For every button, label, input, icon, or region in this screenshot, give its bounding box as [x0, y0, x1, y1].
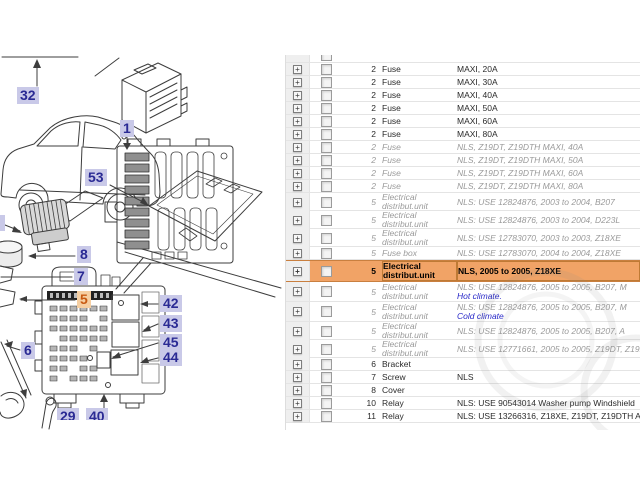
- table-row[interactable]: + 11 Relay NLS: USE 13266316, Z18XE, Z19…: [286, 410, 640, 423]
- part-description: MAXI, 20A: [457, 65, 640, 74]
- description-line1: NLS: USE 12824876, 2003 to 2004, D223L: [457, 216, 640, 225]
- position-number: 5: [342, 344, 382, 354]
- description-line1: MAXI, 60A: [457, 117, 640, 126]
- diagram-callout[interactable]: 5: [77, 291, 91, 308]
- part-description: NLS: [457, 373, 640, 382]
- part-description: MAXI, 40A: [457, 91, 640, 100]
- part-description: NLS, 2005 to 2005, Z18XE: [457, 261, 640, 281]
- table-row[interactable]: + 2 Fuse NLS, Z19DT, Z19DTH MAXI, 40A: [286, 141, 640, 154]
- part-description: NLS: USE 12771661, 2005 to 2005, Z19DT, …: [457, 345, 640, 354]
- expand-plus-icon[interactable]: +: [293, 117, 302, 126]
- row-checkbox[interactable]: [321, 359, 332, 370]
- part-description: MAXI, 60A: [457, 117, 640, 126]
- part-name: Electrical distribut.unit: [382, 340, 457, 358]
- table-row[interactable]: + 5 Electrical distribut.unit NLS: USE 1…: [286, 211, 640, 229]
- row-checkbox[interactable]: [321, 286, 332, 297]
- expand-plus-icon[interactable]: +: [293, 78, 302, 87]
- description-line1: NLS: USE 90543014 Washer pump Windshield: [457, 399, 640, 408]
- part-name: Fuse: [382, 117, 457, 126]
- checkbox-cell: [310, 261, 342, 281]
- part-name: Screw: [382, 373, 457, 382]
- position-number: 2: [342, 116, 382, 126]
- description-line1: MAXI, 50A: [457, 104, 640, 113]
- expand-cell: +: [286, 115, 310, 127]
- expand-plus-icon[interactable]: +: [293, 373, 302, 382]
- expand-plus-icon[interactable]: +: [293, 130, 302, 139]
- position-number: 5: [342, 233, 382, 243]
- diagram-callout[interactable]: 6: [21, 342, 35, 359]
- checkbox-cell: [310, 141, 342, 153]
- table-row[interactable]: + 5 Electrical distribut.unit NLS: USE 1…: [286, 322, 640, 340]
- expand-cell: +: [286, 261, 310, 281]
- description-line2: Hot climate.: [457, 292, 640, 301]
- part-name: Electrical distribut.unit: [382, 283, 457, 301]
- epc-window: 32 1 53 8 7 5 6 42 43 45 44 29 40 + 2 Fu…: [0, 0, 640, 480]
- row-checkbox[interactable]: [321, 266, 332, 277]
- diagram-callout[interactable]: 8: [77, 246, 91, 263]
- expand-cell: +: [286, 397, 310, 409]
- checkbox-cell: [310, 384, 342, 396]
- diagram-pane: 32 1 53 8 7 5 6 42 43 45 44 29 40: [0, 0, 285, 480]
- part-description: NLS: USE 12783070, 2004 to 2004, Z18XE: [457, 249, 640, 258]
- table-row[interactable]: + 2 Fuse NLS, Z19DT, Z19DTH MAXI, 50A: [286, 154, 640, 167]
- part-description: NLS: USE 12824876, 2003 to 2004, B207: [457, 198, 640, 207]
- expand-cell: +: [286, 154, 310, 166]
- clipped-callout-sliver: [0, 215, 5, 231]
- part-name: Electrical distribut.unit: [382, 229, 457, 247]
- expand-cell: +: [286, 371, 310, 383]
- row-checkbox[interactable]: [321, 372, 332, 383]
- part-name: Fuse: [382, 143, 457, 152]
- expand-plus-icon[interactable]: +: [293, 104, 302, 113]
- expand-plus-icon[interactable]: +: [293, 345, 302, 354]
- part-name: Electrical distribut.unit: [382, 211, 457, 229]
- expand-plus-icon[interactable]: +: [293, 143, 302, 152]
- description-line1: MAXI, 40A: [457, 91, 640, 100]
- row-checkbox[interactable]: [321, 90, 332, 101]
- checkbox-cell: [310, 358, 342, 370]
- position-number: 6: [342, 359, 382, 369]
- table-row[interactable]: + 6 Bracket: [286, 358, 640, 371]
- part-name: Fuse: [382, 169, 457, 178]
- part-description: MAXI, 30A: [457, 78, 640, 87]
- expand-plus-icon[interactable]: +: [293, 65, 302, 74]
- description-line1: NLS, Z19DT, Z19DTH MAXI, 40A: [457, 143, 640, 152]
- expand-cell: +: [286, 247, 310, 259]
- part-description: NLS: USE 12824876, 2003 to 2004, D223L: [457, 216, 640, 225]
- table-row[interactable]: + 2 Fuse MAXI, 20A: [286, 63, 640, 76]
- description-line1: MAXI, 20A: [457, 65, 640, 74]
- expand-cell: +: [286, 322, 310, 340]
- clipped-top-row: [286, 55, 640, 63]
- checkbox-cell: [310, 115, 342, 127]
- checkbox-cell: [310, 211, 342, 229]
- description-line1: NLS: USE 12771661, 2005 to 2005, Z19DT, …: [457, 345, 640, 354]
- table-row[interactable]: + 5 Electrical distribut.unit NLS: USE 1…: [286, 302, 640, 322]
- row-checkbox[interactable]: [321, 233, 332, 244]
- part-description: NLS: USE 12783070, 2003 to 2003, Z18XE: [457, 234, 640, 243]
- part-name: Electrical distribut.unit: [382, 303, 457, 321]
- car-leader-lines: [117, 242, 281, 297]
- checkbox-cell: [310, 154, 342, 166]
- expand-plus-icon[interactable]: +: [293, 169, 302, 178]
- table-row[interactable]: + 2 Fuse MAXI, 30A: [286, 76, 640, 89]
- description-line1: NLS: USE 12824876, 2005 to 2005, B207, A: [457, 327, 640, 336]
- expand-plus-icon[interactable]: +: [293, 399, 302, 408]
- row-checkbox[interactable]: [321, 181, 332, 192]
- checkbox-cell: [310, 63, 342, 75]
- checkbox-cell: [310, 167, 342, 179]
- row-checkbox[interactable]: [321, 344, 332, 355]
- diagram-callout[interactable]: 44: [160, 349, 182, 366]
- position-number: 10: [342, 398, 382, 408]
- part-name: Fuse: [382, 65, 457, 74]
- part-name: Fuse: [382, 91, 457, 100]
- part-name: Bracket: [382, 360, 457, 369]
- table-row[interactable]: + 5 Electrical distribut.unit NLS, 2005 …: [286, 260, 640, 282]
- part-name: Fuse: [382, 104, 457, 113]
- part-description: NLS: USE 12824876, 2005 to 2005, B207, M…: [457, 303, 640, 321]
- cap-part: [0, 241, 22, 267]
- row-checkbox[interactable]: [321, 215, 332, 226]
- part-description: MAXI, 50A: [457, 104, 640, 113]
- description-line1: NLS, 2005 to 2005, Z18XE: [458, 267, 639, 276]
- checkbox-cell: [310, 410, 342, 422]
- position-number: 2: [342, 90, 382, 100]
- position-number: 5: [342, 197, 382, 207]
- part-description: NLS, Z19DT, Z19DTH MAXI, 40A: [457, 143, 640, 152]
- description-line1: MAXI, 80A: [457, 130, 640, 139]
- expand-plus-icon[interactable]: +: [293, 216, 302, 225]
- description-line1: NLS: USE 13266316, Z18XE, Z19DT, Z19DTH …: [457, 412, 640, 421]
- part-name: Relay: [382, 412, 457, 421]
- table-row[interactable]: + 10 Relay NLS: USE 90543014 Washer pump…: [286, 397, 640, 410]
- table-row[interactable]: + 8 Cover: [286, 384, 640, 397]
- row-checkbox[interactable]: [321, 129, 332, 140]
- table-row[interactable]: + 5 Electrical distribut.unit NLS: USE 1…: [286, 229, 640, 247]
- diagram-callout[interactable]: 43: [160, 315, 182, 332]
- expand-plus-icon[interactable]: +: [293, 182, 302, 191]
- checkbox-cell: [310, 371, 342, 383]
- position-number: 5: [342, 326, 382, 336]
- row-checkbox[interactable]: [321, 385, 332, 396]
- main-fuse-box: [35, 267, 165, 408]
- reference-line-2: [95, 58, 119, 76]
- part-name: Fuse: [382, 130, 457, 139]
- expand-plus-icon[interactable]: +: [293, 249, 302, 258]
- clipped-part-5: [0, 289, 15, 307]
- table-row[interactable]: + 2 Fuse NLS, Z19DT, Z19DTH MAXI, 80A: [286, 180, 640, 193]
- table-row[interactable]: + 5 Electrical distribut.unit NLS: USE 1…: [286, 193, 640, 211]
- part-description: NLS: USE 13266316, Z18XE, Z19DT, Z19DTH …: [457, 412, 640, 421]
- description-line1: NLS: [457, 373, 640, 382]
- description-line2: Cold climate: [457, 312, 640, 321]
- description-line1: NLS: USE 12783070, 2003 to 2003, Z18XE: [457, 234, 640, 243]
- row-checkbox[interactable]: [321, 64, 332, 75]
- checkbox-cell: [310, 340, 342, 358]
- part-name: Cover: [382, 386, 457, 395]
- expand-plus-icon[interactable]: +: [293, 412, 302, 421]
- checkbox-cell: [310, 302, 342, 321]
- checkbox-cell: [310, 76, 342, 88]
- expand-plus-icon[interactable]: +: [293, 156, 302, 165]
- position-number: 2: [342, 129, 382, 139]
- row-checkbox[interactable]: [321, 116, 332, 127]
- expand-strip: [286, 55, 310, 63]
- description-line1: NLS, Z19DT, Z19DTH MAXI, 50A: [457, 156, 640, 165]
- checkbox-cell: [310, 397, 342, 409]
- diagram-callout[interactable]: 53: [85, 169, 107, 186]
- part-name: Fuse: [382, 78, 457, 87]
- expand-cell: +: [286, 384, 310, 396]
- expand-cell: +: [286, 410, 310, 422]
- part-description: NLS, Z19DT, Z19DTH MAXI, 60A: [457, 169, 640, 178]
- expand-plus-icon[interactable]: +: [293, 360, 302, 369]
- expand-cell: +: [286, 76, 310, 88]
- position-number: 5: [342, 307, 382, 317]
- row-checkbox[interactable]: [321, 142, 332, 153]
- position-number: 5: [342, 287, 382, 297]
- description-line1: NLS: USE 12783070, 2004 to 2004, Z18XE: [457, 249, 640, 258]
- position-number: 2: [342, 77, 382, 87]
- diagram-callout[interactable]: 29: [57, 408, 79, 420]
- row-checkbox[interactable]: [321, 103, 332, 114]
- row-checkbox[interactable]: [321, 248, 332, 259]
- expand-cell: +: [286, 340, 310, 358]
- expand-plus-icon[interactable]: +: [293, 386, 302, 395]
- expand-plus-icon[interactable]: +: [293, 91, 302, 100]
- expand-plus-icon[interactable]: +: [293, 234, 302, 243]
- diagram-callout[interactable]: 42: [160, 295, 182, 312]
- expand-cell: +: [286, 63, 310, 75]
- expand-plus-icon[interactable]: +: [293, 287, 302, 296]
- expand-plus-icon[interactable]: +: [293, 307, 302, 316]
- position-number: 2: [342, 168, 382, 178]
- part-name: Fuse box: [382, 249, 457, 258]
- position-number: 2: [342, 64, 382, 74]
- table-row[interactable]: + 5 Electrical distribut.unit NLS: USE 1…: [286, 282, 640, 302]
- expand-cell: +: [286, 102, 310, 114]
- expand-plus-icon[interactable]: +: [293, 327, 302, 336]
- part-description: NLS: USE 90543014 Washer pump Windshield: [457, 399, 640, 408]
- position-number: 8: [342, 385, 382, 395]
- row-checkbox[interactable]: [321, 168, 332, 179]
- position-number: 11: [342, 411, 382, 421]
- expand-cell: +: [286, 211, 310, 229]
- row-checkbox[interactable]: [321, 197, 332, 208]
- expand-cell: +: [286, 302, 310, 321]
- description-line1: NLS, Z19DT, Z19DTH MAXI, 80A: [457, 182, 640, 191]
- position-number: 7: [342, 372, 382, 382]
- row-checkbox[interactable]: [321, 326, 332, 337]
- checkbox-cell: [310, 128, 342, 140]
- expand-cell: +: [286, 141, 310, 153]
- table-row[interactable]: + 2 Fuse MAXI, 80A: [286, 128, 640, 141]
- part-description: NLS, Z19DT, Z19DTH MAXI, 80A: [457, 182, 640, 191]
- table-row[interactable]: + 2 Fuse MAXI, 50A: [286, 102, 640, 115]
- position-number: 5: [342, 266, 382, 276]
- part-description: NLS: USE 12824876, 2005 to 2005, B207, M…: [457, 283, 640, 301]
- position-number: 2: [342, 142, 382, 152]
- row-checkbox[interactable]: [321, 411, 332, 422]
- expand-plus-icon[interactable]: +: [293, 198, 302, 207]
- position-number: 2: [342, 155, 382, 165]
- row-checkbox[interactable]: [321, 77, 332, 88]
- row-checkbox[interactable]: [321, 155, 332, 166]
- part-name: Electrical distribut.unit: [382, 322, 457, 340]
- part-description: NLS, Z19DT, Z19DTH MAXI, 50A: [457, 156, 640, 165]
- part-description: NLS: USE 12824876, 2005 to 2005, B207, A: [457, 327, 640, 336]
- description-line1: NLS, Z19DT, Z19DTH MAXI, 60A: [457, 169, 640, 178]
- part-name: Electrical distribut.unit: [382, 261, 457, 281]
- clipped-part-7: [0, 266, 13, 283]
- expand-cell: +: [286, 193, 310, 211]
- checkbox-cell: [310, 89, 342, 101]
- table-row[interactable]: + 2 Fuse NLS, Z19DT, Z19DTH MAXI, 60A: [286, 167, 640, 180]
- parts-table-pane: + 2 Fuse MAXI, 20A + 2 Fuse MAXI, 30A +: [285, 55, 640, 430]
- part-name: Fuse: [382, 182, 457, 191]
- checkbox-cell: [310, 180, 342, 192]
- table-row[interactable]: + 5 Fuse box NLS: USE 12783070, 2004 to …: [286, 247, 640, 260]
- checkbox-cell: [310, 229, 342, 247]
- row-checkbox[interactable]: [321, 398, 332, 409]
- part-name: Electrical distribut.unit: [382, 193, 457, 211]
- description-line1: MAXI, 30A: [457, 78, 640, 87]
- row-checkbox[interactable]: [321, 55, 332, 61]
- expand-cell: +: [286, 180, 310, 192]
- expand-cell: +: [286, 128, 310, 140]
- part-name: Fuse: [382, 156, 457, 165]
- expand-cell: +: [286, 89, 310, 101]
- checkbox-cell: [310, 193, 342, 211]
- parts-diagram: [0, 0, 285, 480]
- part-name: Relay: [382, 399, 457, 408]
- checkbox-cell: [310, 322, 342, 340]
- expand-plus-icon[interactable]: +: [293, 267, 302, 276]
- position-number: 2: [342, 181, 382, 191]
- table-row[interactable]: + 2 Fuse MAXI, 60A: [286, 115, 640, 128]
- table-row[interactable]: + 5 Electrical distribut.unit NLS: USE 1…: [286, 340, 640, 358]
- diagram-callout[interactable]: 32: [17, 87, 39, 104]
- expand-cell: +: [286, 358, 310, 370]
- expand-cell: +: [286, 167, 310, 179]
- checkbox-cell: [310, 247, 342, 259]
- diagram-callout[interactable]: 40: [86, 408, 108, 420]
- ribbed-relay-block: [20, 199, 73, 254]
- part-description: MAXI, 80A: [457, 130, 640, 139]
- checkbox-cell: [310, 282, 342, 301]
- table-row[interactable]: + 7 Screw NLS: [286, 371, 640, 384]
- description-line1: NLS: USE 12824876, 2003 to 2004, B207: [457, 198, 640, 207]
- diagram-callout[interactable]: 7: [74, 268, 88, 285]
- row-checkbox[interactable]: [321, 306, 332, 317]
- position-number: 5: [342, 248, 382, 258]
- expand-cell: +: [286, 282, 310, 301]
- diagram-callout[interactable]: 1: [120, 120, 134, 137]
- checkbox-cell: [310, 102, 342, 114]
- position-number: 5: [342, 215, 382, 225]
- expand-cell: +: [286, 229, 310, 247]
- position-number: 2: [342, 103, 382, 113]
- table-row[interactable]: + 2 Fuse MAXI, 40A: [286, 89, 640, 102]
